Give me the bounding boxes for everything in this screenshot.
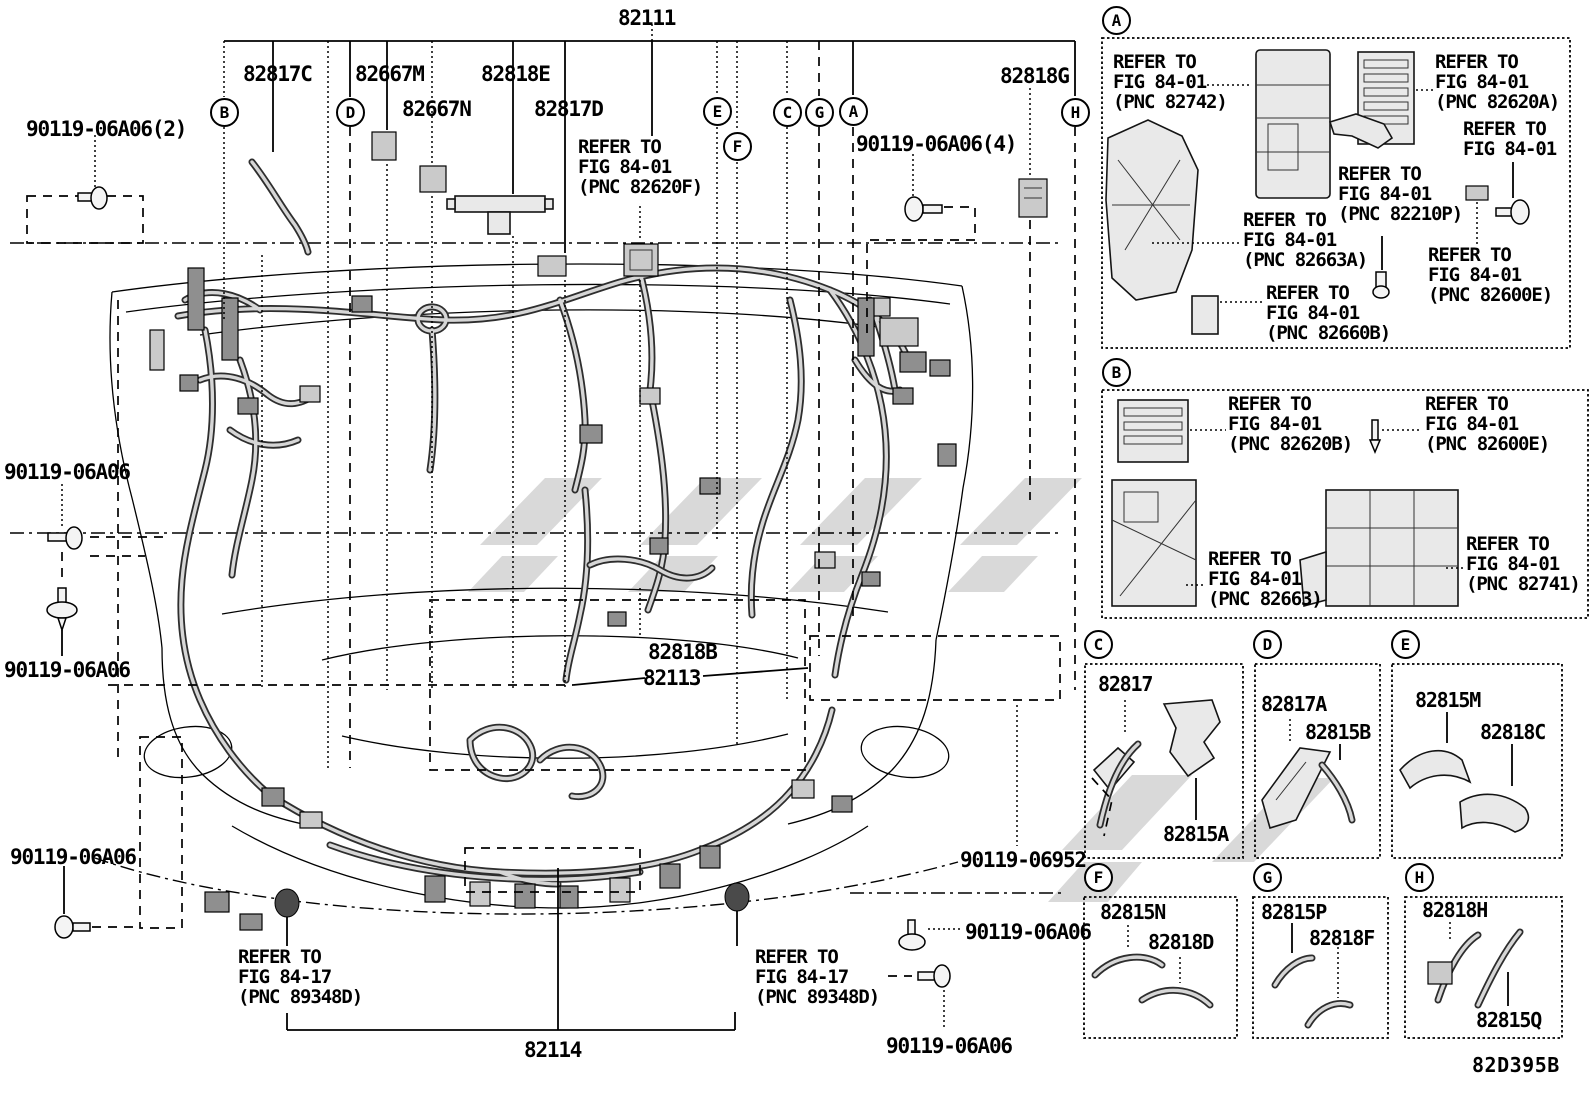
refer-note-pnc82663: REFER TO FIG 84-01 (PNC 82663): [1208, 549, 1322, 609]
part-label-82667M[interactable]: 82667M: [355, 62, 424, 86]
fastener-label-90119-06a06-2[interactable]: 90119-06A06(2): [26, 117, 186, 141]
part-label-82818D[interactable]: 82818D: [1148, 930, 1213, 954]
callout-circle-b[interactable]: B: [210, 98, 239, 127]
callout-circle-e[interactable]: E: [703, 97, 732, 126]
refer-note-pnc82742: REFER TO FIG 84-01 (PNC 82742): [1113, 52, 1227, 112]
fastener-label-90119-06a06-4[interactable]: 90119-06A06(4): [856, 132, 1016, 156]
refer-note-pnc82620A: REFER TO FIG 84-01 (PNC 82620A): [1435, 52, 1559, 112]
refer-note-pnc89348D-left: REFER TO FIG 84-17 (PNC 89348D): [238, 947, 362, 1007]
part-label-82817C[interactable]: 82817C: [243, 62, 312, 86]
callout-circle-f[interactable]: F: [723, 132, 752, 161]
figure-code: 82D395B: [1472, 1053, 1560, 1077]
part-label-82111[interactable]: 82111: [618, 6, 675, 30]
panel-e-circle[interactable]: E: [1391, 630, 1420, 659]
part-label-82815A[interactable]: 82815A: [1163, 822, 1228, 846]
callout-circle-a[interactable]: A: [839, 97, 868, 126]
panel-d-circle[interactable]: D: [1253, 630, 1282, 659]
panel-b-circle[interactable]: B: [1102, 358, 1131, 387]
refer-note-pnc82660B: REFER TO FIG 84-01 (PNC 82660B): [1266, 283, 1390, 343]
refer-note-pnc82600E-a: REFER TO FIG 84-01 (PNC 82600E): [1428, 245, 1552, 305]
fastener-label-90119-06a06-left-2[interactable]: 90119-06A06: [4, 658, 130, 682]
panel-g-circle[interactable]: G: [1253, 863, 1282, 892]
part-label-82818F[interactable]: 82818F: [1309, 926, 1374, 950]
part-label-82815P[interactable]: 82815P: [1261, 900, 1326, 924]
parts-diagram-page: B D E F C G A H A B C D E F G H 82111 82…: [0, 0, 1592, 1099]
part-label-82114[interactable]: 82114: [524, 1038, 581, 1062]
part-label-82667N[interactable]: 82667N: [402, 97, 471, 121]
refer-note-pnc82620F: REFER TO FIG 84-01 (PNC 82620F): [578, 137, 702, 197]
part-label-82815B[interactable]: 82815B: [1305, 720, 1370, 744]
fastener-label-90119-06a06-left-3[interactable]: 90119-06A06: [10, 845, 136, 869]
part-label-82817A[interactable]: 82817A: [1261, 692, 1326, 716]
grommet-icon: [725, 883, 749, 911]
center-leaders: [108, 559, 808, 1030]
refer-note-pnc82663A: REFER TO FIG 84-01 (PNC 82663A): [1243, 210, 1367, 270]
screw-icon: [55, 916, 73, 938]
fastener-label-90119-06a06-left-1[interactable]: 90119-06A06: [4, 460, 130, 484]
fastener-label-90119-06a06-right-1[interactable]: 90119-06A06: [965, 920, 1091, 944]
panel-h-parts: [1428, 922, 1520, 1006]
refer-note-pnc82620B: REFER TO FIG 84-01 (PNC 82620B): [1228, 394, 1352, 454]
part-label-82815N[interactable]: 82815N: [1100, 900, 1165, 924]
panel-h-circle[interactable]: H: [1405, 863, 1434, 892]
panel-c-circle[interactable]: C: [1084, 630, 1113, 659]
clip-icon: [1466, 186, 1488, 200]
part-label-82817[interactable]: 82817: [1098, 672, 1152, 696]
part-label-82817D[interactable]: 82817D: [534, 97, 603, 121]
screw-icon: [905, 197, 923, 221]
part-label-82815Q[interactable]: 82815Q: [1476, 1008, 1541, 1032]
part-label-82818E[interactable]: 82818E: [481, 62, 550, 86]
callout-circle-d[interactable]: D: [336, 98, 365, 127]
fastener-label-90119-06952[interactable]: 90119-06952: [960, 848, 1086, 872]
part-label-82818H[interactable]: 82818H: [1422, 898, 1487, 922]
part-label-82113[interactable]: 82113: [643, 666, 700, 690]
screw-icon: [48, 533, 68, 541]
fastener-label-90119-06a06-right-2[interactable]: 90119-06A06: [886, 1034, 1012, 1058]
refer-note-pnc82741: REFER TO FIG 84-01 (PNC 82741): [1466, 534, 1580, 594]
panel-a-circle[interactable]: A: [1102, 6, 1131, 35]
part-label-82815M[interactable]: 82815M: [1415, 688, 1480, 712]
callout-circle-c[interactable]: C: [773, 98, 802, 127]
part-label-82818C[interactable]: 82818C: [1480, 720, 1545, 744]
grommet-icon: [275, 889, 299, 917]
panel-f-circle[interactable]: F: [1084, 863, 1113, 892]
refer-note-fig8401: REFER TO FIG 84-01: [1463, 119, 1556, 159]
callout-circle-g[interactable]: G: [805, 98, 834, 127]
part-label-82818B[interactable]: 82818B: [648, 640, 717, 664]
refer-note-pnc82600E-b: REFER TO FIG 84-01 (PNC 82600E): [1425, 394, 1549, 454]
connector-blocks: [150, 268, 956, 930]
pin-icon: [1372, 420, 1378, 440]
callout-circle-h[interactable]: H: [1061, 98, 1090, 127]
part-label-82818G[interactable]: 82818G: [1000, 64, 1069, 88]
refer-note-pnc89348D-right: REFER TO FIG 84-17 (PNC 89348D): [755, 947, 879, 1007]
